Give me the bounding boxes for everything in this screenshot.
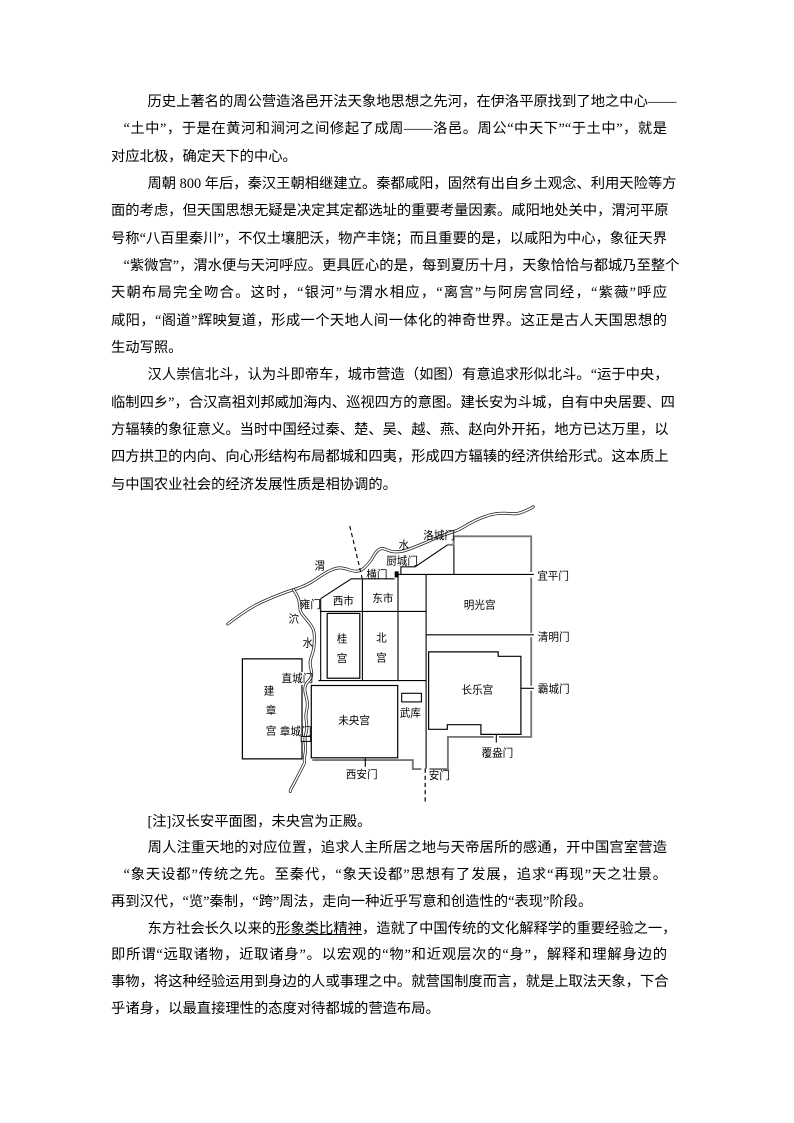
svg-text:宜平门: 宜平门 <box>537 570 569 583</box>
svg-text:霸城门: 霸城门 <box>538 682 570 695</box>
svg-text:直城门: 直城门 <box>282 672 314 685</box>
svg-text:北: 北 <box>376 633 387 645</box>
svg-text:横门: 横门 <box>366 568 387 581</box>
svg-text:厨城门: 厨城门 <box>386 555 418 568</box>
svg-text:未央宫: 未央宫 <box>338 714 370 727</box>
svg-text:长乐宫: 长乐宫 <box>462 684 494 697</box>
svg-text:武库: 武库 <box>400 706 422 719</box>
svg-text:桂: 桂 <box>337 632 348 645</box>
svg-text:水: 水 <box>399 540 410 552</box>
svg-text:宫: 宫 <box>266 725 277 738</box>
svg-text:建: 建 <box>264 685 275 698</box>
svg-text:宫: 宫 <box>376 651 387 664</box>
svg-text:章城门: 章城门 <box>280 725 312 738</box>
svg-text:章: 章 <box>266 704 277 717</box>
svg-text:洛城门: 洛城门 <box>423 529 455 542</box>
svg-text:雍门: 雍门 <box>300 598 321 611</box>
svg-text:覆盎门: 覆盎门 <box>482 747 514 760</box>
svg-text:宫: 宫 <box>337 652 348 665</box>
svg-text:清明门: 清明门 <box>538 631 570 644</box>
svg-text:泬: 泬 <box>289 614 300 626</box>
svg-text:东市: 东市 <box>372 592 394 605</box>
svg-text:安门: 安门 <box>429 769 450 782</box>
svg-text:西安门: 西安门 <box>346 768 378 781</box>
svg-text:西市: 西市 <box>333 594 355 607</box>
svg-text:水: 水 <box>303 638 314 650</box>
svg-text:渭: 渭 <box>315 560 326 572</box>
svg-text:明光宫: 明光宫 <box>464 599 496 612</box>
